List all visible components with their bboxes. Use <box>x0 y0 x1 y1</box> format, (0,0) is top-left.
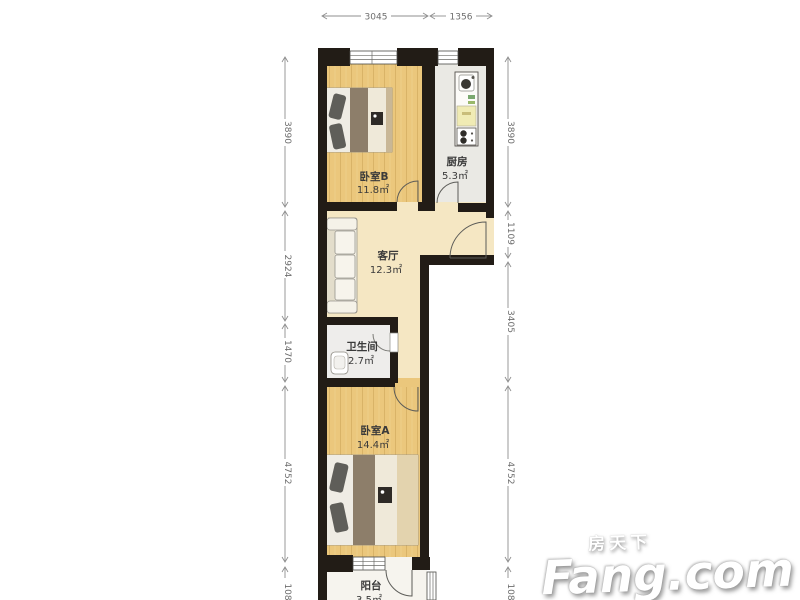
window-bedroom-b <box>350 51 397 64</box>
kitchen-counter-icon <box>455 72 478 146</box>
dim-top-1: 3045 <box>365 13 388 23</box>
label-bathroom: 卫生间 <box>346 340 378 353</box>
dim-left-5: 108 <box>282 583 292 600</box>
label-balcony: 阳台 <box>361 579 382 592</box>
dim-left-4: 4752 <box>282 462 292 485</box>
window-balcony-front <box>353 557 385 570</box>
bathroom-fixture-icon <box>331 352 348 374</box>
window-balcony-side <box>427 572 436 600</box>
bed-icon-bedroom-a <box>327 455 418 545</box>
bed-icon-bedroom-b <box>327 88 392 152</box>
area-bedroom-a: 14.4㎡ <box>357 439 389 451</box>
dim-right-2: 1109 <box>505 222 515 245</box>
sofa-icon <box>327 218 357 313</box>
dim-left-2: 2924 <box>282 255 292 278</box>
label-kitchen: 厨房 <box>447 155 468 168</box>
dim-right-4: 4752 <box>505 462 515 485</box>
window-kitchen <box>438 51 458 64</box>
floor-plan-image: 卧室B 11.8㎡ 厨房 5.3㎡ 客厅 12.3㎡ 卫生间 2.7㎡ 卧室A … <box>0 0 800 600</box>
dim-left-3: 1470 <box>282 340 292 363</box>
floor-plan-svg: 卧室B 11.8㎡ 厨房 5.3㎡ 客厅 12.3㎡ 卫生间 2.7㎡ 卧室A … <box>0 0 800 600</box>
label-bedroom-a: 卧室A <box>360 424 390 437</box>
wall-left <box>318 51 327 600</box>
wall-divider-kitchen <box>422 64 435 211</box>
hallway-floor <box>398 317 420 387</box>
dimension-right: 3890 1109 3405 4752 108 <box>505 57 515 600</box>
wall-bedroom-b-bottom <box>327 202 397 211</box>
area-balcony: 3.5㎡ <box>356 594 382 600</box>
wall-bathroom-right-a <box>390 317 398 333</box>
wall-kitchen-bottom <box>458 203 486 212</box>
dimension-top: 3045 1356 <box>322 13 492 23</box>
wall-top-pier-mid <box>397 48 438 66</box>
dim-right-1: 3890 <box>505 121 515 144</box>
dim-top-2: 1356 <box>450 13 473 23</box>
wall-bedroom-a-top <box>327 378 395 387</box>
dim-left-1: 3890 <box>282 121 292 144</box>
dim-right-3: 3405 <box>505 310 515 333</box>
watermark-en-logo: Fang.com <box>541 547 795 600</box>
dim-right-5: 108 <box>505 583 515 600</box>
area-living: 12.3㎡ <box>370 264 402 276</box>
wall-right-lower <box>420 255 429 570</box>
label-bedroom-b: 卧室B <box>359 170 388 183</box>
dimension-left: 3890 2924 1470 4752 108 <box>282 57 292 600</box>
watermark: 房天下 Fang.com <box>540 530 795 600</box>
wall-balcony-pier-right <box>412 557 430 570</box>
area-bedroom-b: 11.8㎡ <box>357 184 389 196</box>
area-bathroom: 2.7㎡ <box>348 355 374 367</box>
area-kitchen: 5.3㎡ <box>442 170 468 182</box>
label-living: 客厅 <box>377 249 399 262</box>
wall-right-upper <box>486 51 494 218</box>
wall-notch <box>422 255 494 265</box>
wall-bathroom-top <box>327 317 398 325</box>
